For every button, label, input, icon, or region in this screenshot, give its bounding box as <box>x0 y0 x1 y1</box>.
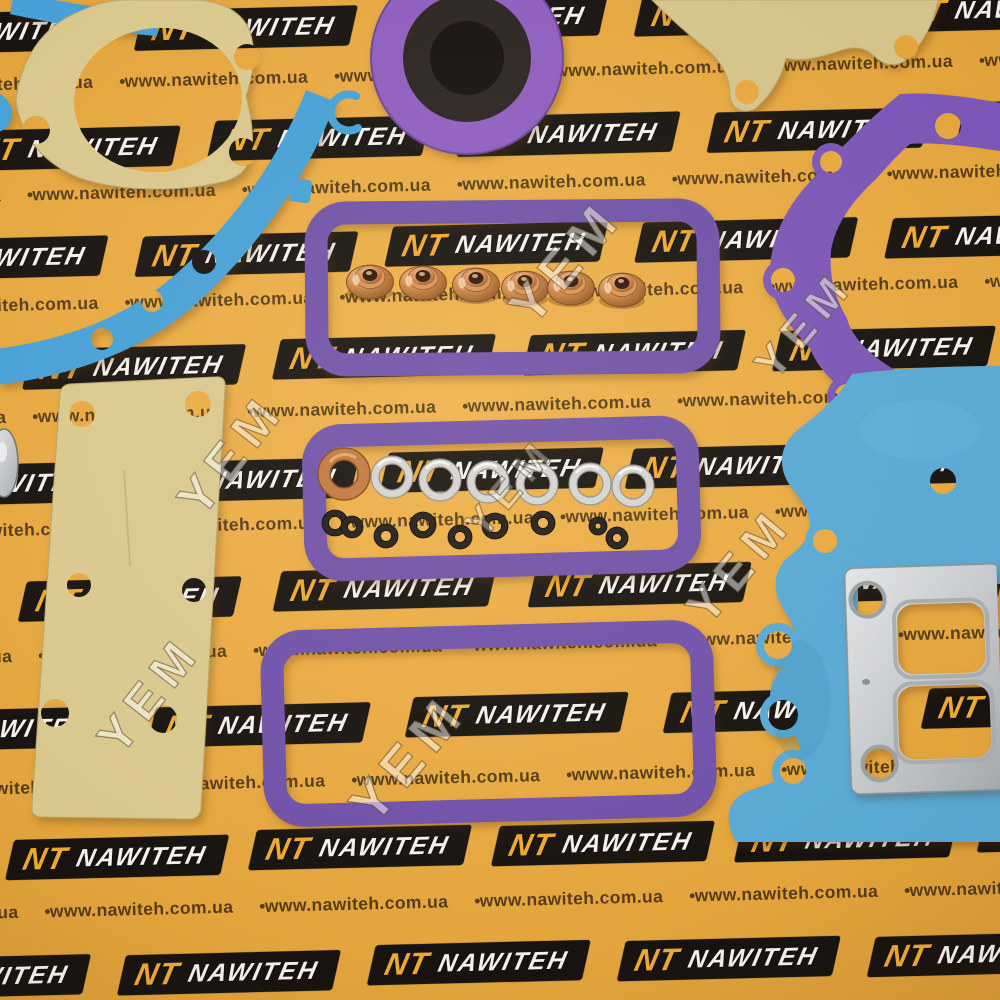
o-ring <box>482 513 508 539</box>
product-photo: www.nawiteh.com.ua•www.nawiteh.com.uawww… <box>0 0 1000 1000</box>
blue-edge-fragment <box>0 92 12 133</box>
aluminum-washer <box>419 459 461 501</box>
seal-bore <box>430 21 504 95</box>
nut-bore <box>416 270 431 282</box>
spring-clip <box>0 429 18 497</box>
aluminum-washer <box>569 463 611 505</box>
blue-ring-fragment <box>331 95 358 131</box>
gasket-parts-layer <box>0 0 1000 1000</box>
o-rings-group <box>322 510 628 549</box>
aluminum-washer <box>516 463 558 505</box>
o-ring <box>589 517 607 535</box>
o-ring <box>606 527 628 549</box>
blue-corner-fragment <box>289 178 312 203</box>
nut-bore <box>518 275 533 287</box>
crankshaft-oil-seal <box>371 0 563 154</box>
copper-flange-nut <box>347 265 394 301</box>
nut-bore <box>615 277 630 289</box>
nut-bore <box>363 269 378 281</box>
copper-flange-nut <box>400 266 447 302</box>
thermostat-gasket <box>16 0 254 189</box>
o-ring <box>410 512 436 538</box>
copper-nuts-group <box>347 265 646 309</box>
copper-flange-nut <box>453 268 500 304</box>
o-ring <box>341 516 363 538</box>
copper-flange-nut <box>502 271 549 307</box>
o-ring <box>448 525 472 549</box>
turbo-mount-plate <box>844 564 1000 795</box>
valve-cover-gasket-3 <box>271 631 705 816</box>
copper-flange-nut <box>548 271 595 307</box>
nut-bore <box>469 272 484 284</box>
aluminum-washer <box>371 456 413 498</box>
o-ring <box>374 524 398 548</box>
copper-flange-nut <box>599 273 646 309</box>
aluminum-washer <box>612 465 654 507</box>
nut-bore <box>564 275 579 287</box>
aluminum-washer <box>467 461 509 503</box>
water-pump-gasket <box>652 0 938 111</box>
washers-group <box>318 448 654 507</box>
o-ring <box>531 511 555 535</box>
side-cover-gasket <box>32 377 225 819</box>
